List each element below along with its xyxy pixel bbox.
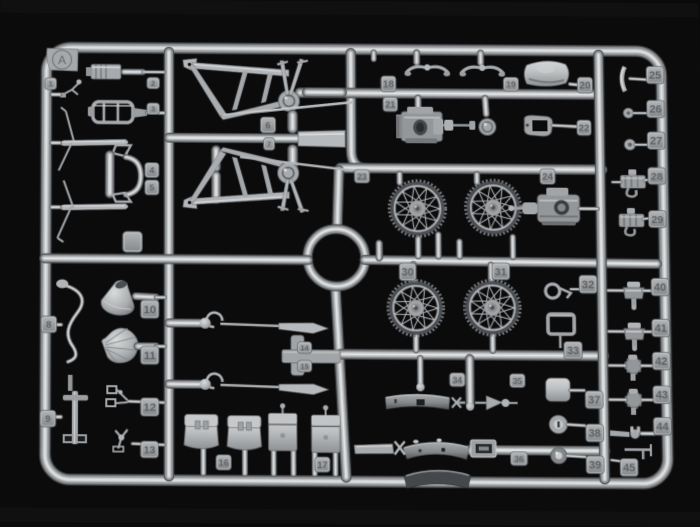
svg-text:1: 1 xyxy=(49,81,53,88)
svg-text:18: 18 xyxy=(383,79,395,90)
svg-text:22: 22 xyxy=(579,123,590,134)
svg-text:20: 20 xyxy=(579,81,591,92)
svg-text:13: 13 xyxy=(144,445,156,456)
svg-text:10: 10 xyxy=(144,304,157,316)
svg-text:A: A xyxy=(58,53,66,67)
svg-text:41: 41 xyxy=(655,323,667,335)
svg-text:2: 2 xyxy=(151,81,155,88)
svg-text:23: 23 xyxy=(357,171,367,181)
svg-text:37: 37 xyxy=(588,394,600,406)
svg-text:31: 31 xyxy=(495,267,507,278)
svg-text:25: 25 xyxy=(649,70,661,82)
svg-text:28: 28 xyxy=(651,172,663,183)
svg-text:26: 26 xyxy=(650,104,662,116)
svg-text:6: 6 xyxy=(265,120,270,130)
svg-text:29: 29 xyxy=(651,215,663,226)
svg-text:14: 14 xyxy=(301,345,309,352)
svg-text:11: 11 xyxy=(144,350,156,362)
svg-text:36: 36 xyxy=(514,454,524,464)
svg-text:35: 35 xyxy=(513,376,523,386)
svg-text:45: 45 xyxy=(623,462,635,474)
svg-text:19: 19 xyxy=(506,79,516,89)
svg-text:15: 15 xyxy=(301,364,309,371)
svg-text:44: 44 xyxy=(656,421,668,433)
svg-text:40: 40 xyxy=(654,282,666,294)
svg-text:7: 7 xyxy=(267,141,271,148)
svg-text:12: 12 xyxy=(143,402,156,414)
svg-text:4: 4 xyxy=(149,165,154,175)
svg-text:3: 3 xyxy=(151,106,155,113)
svg-text:32: 32 xyxy=(582,279,595,291)
svg-text:17: 17 xyxy=(317,460,328,470)
svg-text:34: 34 xyxy=(453,375,463,385)
svg-text:38: 38 xyxy=(589,428,601,440)
svg-text:16: 16 xyxy=(218,458,228,468)
svg-text:30: 30 xyxy=(402,267,414,279)
svg-text:21: 21 xyxy=(385,100,395,110)
svg-text:39: 39 xyxy=(589,459,601,471)
svg-text:33: 33 xyxy=(567,345,579,357)
svg-text:24: 24 xyxy=(542,172,554,183)
svg-text:27: 27 xyxy=(650,135,662,147)
svg-text:8: 8 xyxy=(46,320,51,331)
svg-text:9: 9 xyxy=(45,414,50,425)
svg-text:43: 43 xyxy=(656,389,668,401)
svg-text:42: 42 xyxy=(655,356,667,368)
svg-text:5: 5 xyxy=(149,183,154,193)
